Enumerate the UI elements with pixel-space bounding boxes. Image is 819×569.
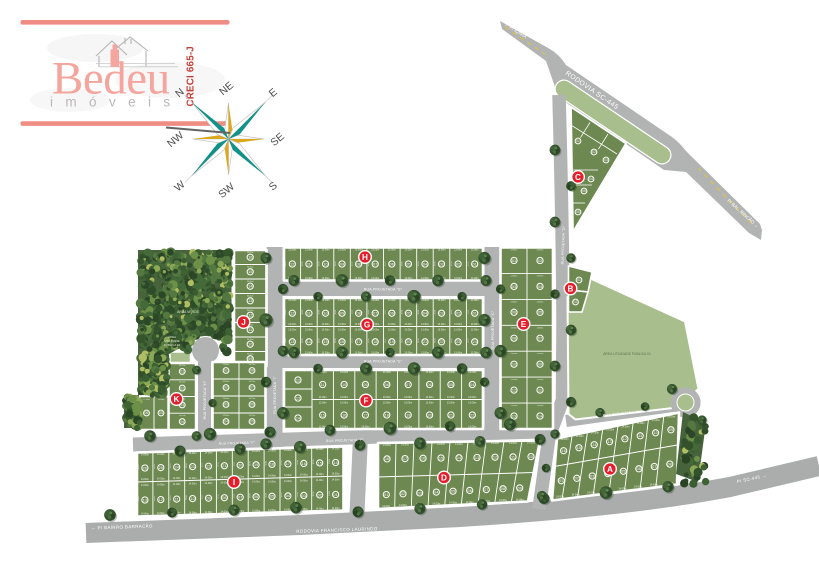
svg-text:14.75m: 14.75m	[249, 364, 256, 366]
svg-text:03: 03	[302, 494, 306, 498]
svg-text:05: 05	[270, 495, 274, 499]
svg-text:C: C	[575, 173, 581, 182]
svg-text:RUA PROJETADA "B": RUA PROJETADA "B"	[364, 287, 403, 291]
svg-text:05: 05	[451, 490, 455, 494]
svg-text:13.00m: 13.00m	[388, 299, 396, 302]
svg-text:13: 13	[290, 340, 294, 344]
svg-text:30.00: 30.00	[249, 493, 251, 498]
svg-text:13.00m: 13.00m	[322, 323, 330, 326]
svg-text:11: 11	[511, 455, 515, 459]
svg-text:30.00: 30.00	[418, 338, 420, 343]
svg-text:14.00m: 14.00m	[173, 477, 181, 480]
svg-text:13.00m: 13.00m	[421, 323, 429, 326]
svg-text:13.00m: 13.00m	[454, 351, 462, 354]
svg-text:23.80m: 23.80m	[537, 327, 544, 329]
svg-text:06: 06	[637, 467, 641, 471]
svg-text:13.00m: 13.00m	[438, 299, 446, 302]
svg-text:18: 18	[385, 457, 389, 461]
svg-text:04: 04	[470, 383, 474, 387]
svg-text:23.80m: 23.80m	[537, 405, 544, 407]
svg-text:14.00m: 14.00m	[399, 504, 407, 507]
svg-text:14.00m: 14.00m	[157, 453, 165, 456]
svg-text:13.00m: 13.00m	[421, 299, 429, 302]
svg-text:14.00m: 14.00m	[220, 510, 228, 513]
svg-text:RUA PROJETADA "C": RUA PROJETADA "C"	[491, 310, 495, 349]
svg-text:30.00: 30.00	[401, 310, 403, 315]
svg-text:13.00m: 13.00m	[355, 299, 363, 302]
svg-text:09: 09	[363, 383, 367, 387]
svg-text:13: 13	[475, 456, 479, 460]
svg-text:14.00m: 14.00m	[637, 422, 645, 425]
svg-text:30.00: 30.00	[451, 338, 453, 343]
svg-text:02: 02	[456, 312, 460, 316]
svg-text:04: 04	[180, 420, 184, 424]
svg-text:24.00m: 24.00m	[223, 415, 230, 417]
svg-text:13.00m: 13.00m	[340, 371, 348, 374]
svg-text:16: 16	[421, 457, 425, 461]
svg-text:03: 03	[439, 262, 443, 266]
svg-text:14.00m: 14.00m	[220, 451, 228, 454]
svg-text:01: 01	[473, 262, 477, 266]
svg-text:14.00m: 14.00m	[205, 476, 213, 479]
svg-text:14.75m: 14.75m	[249, 381, 256, 383]
svg-text:30.00: 30.00	[302, 262, 304, 267]
svg-text:11: 11	[538, 389, 542, 393]
svg-text:13.00m: 13.00m	[340, 396, 348, 399]
svg-text:24.00m: 24.00m	[223, 364, 230, 366]
svg-text:G: G	[364, 320, 370, 329]
svg-text:14.00m: 14.00m	[141, 478, 149, 481]
svg-text:13.00m: 13.00m	[355, 277, 363, 280]
svg-text:06: 06	[468, 489, 472, 493]
svg-text:08: 08	[356, 262, 360, 266]
svg-text:10: 10	[190, 497, 194, 501]
svg-text:13.00m: 13.00m	[383, 371, 391, 374]
svg-text:13.00m: 13.00m	[404, 277, 412, 280]
svg-text:04: 04	[286, 494, 290, 498]
svg-text:08: 08	[222, 496, 226, 500]
svg-text:17: 17	[286, 462, 290, 466]
svg-text:22: 22	[206, 465, 210, 469]
svg-text:14.00m: 14.00m	[432, 503, 440, 506]
svg-text:01: 01	[512, 259, 516, 263]
svg-text:01: 01	[180, 370, 184, 374]
svg-text:14.00m: 14.00m	[466, 501, 474, 504]
svg-text:07: 07	[484, 488, 488, 492]
svg-text:01: 01	[384, 493, 388, 497]
svg-text:09: 09	[340, 262, 344, 266]
svg-text:30.00: 30.00	[138, 497, 140, 502]
svg-text:13: 13	[607, 440, 611, 444]
svg-text:F: F	[363, 396, 368, 405]
svg-text:13.00m: 13.00m	[447, 402, 455, 405]
svg-text:14.75m: 14.75m	[249, 415, 256, 417]
svg-text:30.00: 30.00	[352, 338, 354, 343]
svg-text:30.00: 30.00	[249, 461, 251, 466]
svg-text:13.00m: 13.00m	[447, 396, 455, 399]
svg-text:07: 07	[538, 337, 542, 341]
svg-text:01: 01	[559, 479, 563, 483]
svg-text:23.80m: 23.80m	[537, 379, 544, 381]
svg-text:13.00m: 13.00m	[426, 402, 434, 405]
svg-text:04: 04	[423, 312, 427, 316]
svg-text:19: 19	[406, 413, 410, 417]
svg-text:ÁREA VERDE: ÁREA VERDE	[177, 310, 199, 314]
svg-text:01: 01	[577, 278, 581, 282]
svg-text:13.00m: 13.00m	[371, 277, 379, 280]
svg-text:PÚBLICA 02: PÚBLICA 02	[164, 343, 181, 347]
svg-text:15: 15	[323, 340, 327, 344]
svg-text:13.00m: 13.00m	[340, 402, 348, 405]
svg-text:17: 17	[356, 340, 360, 344]
svg-text:13.00m: 13.00m	[338, 329, 346, 332]
svg-text:13.00m: 13.00m	[468, 402, 476, 405]
svg-text:03: 03	[439, 312, 443, 316]
svg-text:06: 06	[427, 383, 431, 387]
svg-text:30.00: 30.00	[451, 310, 453, 315]
svg-text:21: 21	[222, 464, 226, 468]
svg-text:06: 06	[390, 312, 394, 316]
svg-text:30.00: 30.00	[297, 460, 299, 465]
svg-text:30.00: 30.00	[218, 462, 220, 467]
svg-text:03: 03	[224, 403, 228, 407]
svg-text:30.00: 30.00	[335, 338, 337, 343]
svg-text:13.00m: 13.00m	[471, 277, 479, 280]
svg-text:05: 05	[406, 312, 410, 316]
svg-text:13.00m: 13.00m	[454, 329, 462, 332]
svg-text:13.00m: 13.00m	[426, 425, 434, 428]
svg-text:13.00m: 13.00m	[404, 425, 412, 428]
svg-text:23.80m: 23.80m	[511, 275, 518, 277]
svg-text:24.00m: 24.00m	[179, 382, 186, 384]
svg-text:14.00m: 14.00m	[449, 502, 457, 505]
svg-text:14.00m: 14.00m	[499, 499, 507, 502]
svg-text:14.00m: 14.00m	[652, 419, 660, 422]
svg-text:14.00m: 14.00m	[316, 473, 324, 476]
svg-text:07: 07	[652, 465, 656, 469]
svg-text:13.00m: 13.00m	[371, 299, 379, 302]
svg-text:13.00m: 13.00m	[468, 371, 476, 374]
svg-text:14.00m: 14.00m	[437, 443, 445, 446]
svg-text:12: 12	[290, 262, 294, 266]
svg-text:02: 02	[538, 259, 542, 263]
svg-text:23.80m: 23.80m	[537, 250, 544, 252]
svg-text:14.00m: 14.00m	[189, 511, 197, 514]
svg-text:30.00: 30.00	[154, 464, 156, 469]
svg-text:02: 02	[180, 386, 184, 390]
svg-text:30.00: 30.00	[468, 262, 470, 267]
svg-text:16: 16	[340, 340, 344, 344]
svg-text:13.00m: 13.00m	[454, 323, 462, 326]
svg-text:10: 10	[323, 312, 327, 316]
svg-text:02: 02	[224, 386, 228, 390]
svg-text:14.00m: 14.00m	[316, 508, 324, 511]
svg-text:11: 11	[248, 328, 252, 332]
svg-text:08: 08	[250, 369, 254, 373]
svg-text:30.00m: 30.00m	[247, 353, 254, 355]
svg-text:05: 05	[621, 470, 625, 474]
svg-text:11: 11	[638, 434, 642, 438]
svg-text:13.00m: 13.00m	[371, 329, 379, 332]
svg-text:13.00m: 13.00m	[288, 329, 296, 332]
svg-text:13.00m: 13.00m	[288, 249, 296, 252]
svg-text:16: 16	[248, 256, 252, 260]
svg-text:13.00m: 13.00m	[361, 425, 369, 428]
svg-text:21: 21	[423, 340, 427, 344]
svg-text:02: 02	[574, 300, 578, 304]
svg-text:30.00: 30.00	[154, 496, 156, 501]
svg-text:05: 05	[406, 262, 410, 266]
svg-text:13.00m: 13.00m	[454, 249, 462, 252]
svg-text:12: 12	[623, 437, 627, 441]
svg-text:14.00m: 14.00m	[401, 444, 409, 447]
svg-text:30.00: 30.00	[318, 338, 320, 343]
svg-text:30.00: 30.00	[281, 461, 283, 466]
svg-text:06: 06	[145, 411, 149, 415]
svg-text:I: I	[233, 478, 235, 487]
svg-text:13.00m: 13.00m	[421, 351, 429, 354]
svg-text:E: E	[521, 320, 527, 329]
svg-text:30.00: 30.00	[385, 338, 387, 343]
svg-text:14.00m: 14.00m	[587, 492, 595, 495]
svg-text:30.00: 30.00	[302, 310, 304, 315]
svg-text:10: 10	[512, 363, 516, 367]
svg-text:30.00m: 30.00m	[247, 281, 254, 283]
svg-text:02: 02	[401, 492, 405, 496]
svg-text:13.00m: 13.00m	[305, 329, 313, 332]
svg-text:14.00m: 14.00m	[316, 479, 324, 482]
svg-text:30.00: 30.00	[138, 465, 140, 470]
svg-text:13.00m: 13.00m	[338, 249, 346, 252]
svg-text:23: 23	[190, 465, 194, 469]
svg-text:13.00m: 13.00m	[288, 299, 296, 302]
svg-text:13.00m: 13.00m	[288, 323, 296, 326]
svg-text:03: 03	[418, 491, 422, 495]
svg-text:02: 02	[456, 262, 460, 266]
svg-text:23.80m: 23.80m	[511, 301, 518, 303]
svg-text:30.00: 30.00	[265, 461, 267, 466]
svg-text:14.00m: 14.00m	[205, 482, 213, 485]
svg-text:14.00m: 14.00m	[591, 432, 599, 435]
svg-text:08: 08	[356, 312, 360, 316]
svg-text:13.00m: 13.00m	[471, 249, 479, 252]
svg-text:15: 15	[577, 446, 581, 450]
svg-text:14.00m: 14.00m	[173, 483, 181, 486]
svg-text:14.00m: 14.00m	[189, 483, 197, 486]
svg-text:13.00m: 13.00m	[438, 329, 446, 332]
svg-text:J: J	[241, 318, 246, 327]
svg-text:13.00m: 13.00m	[454, 277, 462, 280]
svg-text:13.00m: 13.00m	[305, 249, 313, 252]
svg-text:07: 07	[250, 386, 254, 390]
svg-text:03: 03	[512, 285, 516, 289]
svg-text:08: 08	[385, 383, 389, 387]
svg-text:13.00m: 13.00m	[404, 402, 412, 405]
svg-text:30.00: 30.00	[285, 310, 287, 315]
svg-text:23: 23	[456, 340, 460, 344]
svg-text:18: 18	[385, 413, 389, 417]
svg-text:14.00m: 14.00m	[560, 438, 568, 441]
svg-text:30.00: 30.00	[352, 310, 354, 315]
svg-text:05: 05	[538, 311, 542, 315]
svg-text:13.00m: 13.00m	[471, 329, 479, 332]
svg-text:20: 20	[427, 413, 431, 417]
svg-text:22: 22	[470, 413, 474, 417]
svg-text:11: 11	[175, 498, 179, 502]
svg-text:30.00: 30.00	[329, 491, 331, 496]
svg-text:23.80m: 23.80m	[511, 353, 518, 355]
svg-text:13: 13	[296, 396, 300, 400]
svg-text:14.00m: 14.00m	[455, 443, 463, 446]
svg-text:13.00m: 13.00m	[319, 396, 327, 399]
svg-text:14: 14	[248, 285, 252, 289]
svg-text:30.00: 30.00	[329, 459, 331, 464]
svg-text:24: 24	[175, 466, 179, 470]
svg-text:04: 04	[224, 420, 228, 424]
svg-text:14.00m: 14.00m	[383, 444, 391, 447]
svg-text:13: 13	[248, 299, 252, 303]
svg-text:13.00m: 13.00m	[404, 323, 412, 326]
svg-text:09: 09	[538, 363, 542, 367]
svg-text:13.00m: 13.00m	[322, 277, 330, 280]
svg-text:14.00m: 14.00m	[252, 509, 260, 512]
svg-text:13.00m: 13.00m	[388, 329, 396, 332]
svg-text:30.00: 30.00	[468, 338, 470, 343]
svg-text:14.00m: 14.00m	[650, 483, 658, 486]
svg-text:30.00: 30.00	[401, 338, 403, 343]
svg-text:23.80m: 23.80m	[511, 250, 518, 252]
svg-text:23.80m: 23.80m	[511, 379, 518, 381]
svg-text:14.00m: 14.00m	[332, 448, 340, 451]
svg-text:14.00m: 14.00m	[189, 452, 197, 455]
svg-text:30.00: 30.00	[434, 338, 436, 343]
svg-text:17.40m: 17.40m	[143, 399, 150, 401]
svg-text:13.00m: 13.00m	[305, 323, 313, 326]
svg-text:14.00m: 14.00m	[205, 451, 213, 454]
svg-text:14.00m: 14.00m	[252, 481, 260, 484]
svg-text:30.00: 30.00	[170, 464, 172, 469]
svg-text:16: 16	[561, 449, 565, 453]
svg-text:30.00: 30.00	[186, 463, 188, 468]
svg-text:14.00m: 14.00m	[576, 435, 584, 438]
svg-text:13.00m: 13.00m	[421, 249, 429, 252]
svg-text:13.00m: 13.00m	[471, 299, 479, 302]
svg-text:30.00: 30.00	[202, 495, 204, 500]
svg-text:05: 05	[449, 383, 453, 387]
svg-text:imóveis: imóveis	[50, 95, 183, 110]
svg-text:14.00m: 14.00m	[382, 505, 390, 508]
svg-text:26: 26	[143, 466, 147, 470]
svg-text:07: 07	[406, 383, 410, 387]
svg-text:13.00m: 13.00m	[340, 425, 348, 428]
svg-text:30.00: 30.00	[170, 496, 172, 501]
svg-text:15: 15	[321, 413, 325, 417]
svg-text:23.80m: 23.80m	[511, 327, 518, 329]
svg-text:03: 03	[590, 474, 594, 478]
svg-text:14.00m: 14.00m	[141, 484, 149, 487]
svg-text:14.00m: 14.00m	[618, 488, 626, 491]
svg-text:14.00m: 14.00m	[509, 442, 517, 445]
svg-text:30.00: 30.00	[468, 310, 470, 315]
svg-text:04: 04	[589, 177, 593, 181]
svg-text:14.00m: 14.00m	[157, 478, 165, 481]
svg-text:14: 14	[333, 461, 337, 465]
svg-text:24.00m: 24.00m	[223, 398, 230, 400]
svg-text:13.00m: 13.00m	[404, 249, 412, 252]
svg-text:03: 03	[604, 158, 608, 162]
svg-text:13.00m: 13.00m	[388, 323, 396, 326]
svg-text:10: 10	[248, 343, 252, 347]
svg-text:30.00m: 30.00m	[247, 266, 254, 268]
svg-text:30.00: 30.00	[352, 262, 354, 267]
svg-text:14.00m: 14.00m	[606, 428, 614, 431]
svg-text:30.00: 30.00	[335, 310, 337, 315]
svg-text:14.00m: 14.00m	[157, 512, 165, 515]
svg-text:23.80m: 23.80m	[537, 275, 544, 277]
svg-text:13.00m: 13.00m	[338, 299, 346, 302]
svg-text:13.00m: 13.00m	[305, 277, 313, 280]
svg-text:30.00: 30.00	[318, 262, 320, 267]
svg-text:15: 15	[318, 461, 322, 465]
svg-text:08: 08	[501, 487, 505, 491]
svg-text:30.00: 30.00	[281, 493, 283, 498]
svg-text:30.00: 30.00	[451, 262, 453, 267]
svg-text:13.00m: 13.00m	[371, 249, 379, 252]
svg-text:30.00: 30.00	[335, 262, 337, 267]
svg-text:14.00m: 14.00m	[284, 449, 292, 452]
svg-text:14.00m: 14.00m	[268, 475, 276, 478]
svg-text:13.00m: 13.00m	[371, 351, 379, 354]
svg-text:30.00: 30.00	[202, 463, 204, 468]
svg-text:16: 16	[302, 462, 306, 466]
svg-text:13.00m: 13.00m	[355, 329, 363, 332]
svg-text:13.00m: 13.00m	[471, 351, 479, 354]
svg-text:30.00: 30.00	[234, 494, 236, 499]
svg-text:08: 08	[668, 463, 672, 467]
svg-text:23.80m: 23.80m	[511, 405, 518, 407]
svg-text:13.00m: 13.00m	[447, 371, 455, 374]
svg-text:07: 07	[373, 262, 377, 266]
svg-text:14.00m: 14.00m	[516, 498, 524, 501]
svg-text:13.00m: 13.00m	[421, 329, 429, 332]
svg-text:04: 04	[434, 491, 438, 495]
svg-text:12: 12	[296, 378, 300, 382]
svg-text:13.00m: 13.00m	[388, 249, 396, 252]
svg-text:14: 14	[307, 340, 311, 344]
svg-text:11: 11	[307, 262, 311, 266]
svg-text:13.00m: 13.00m	[426, 371, 434, 374]
svg-text:09: 09	[669, 428, 673, 432]
svg-text:06: 06	[250, 403, 254, 407]
svg-text:13.00m: 13.00m	[404, 329, 412, 332]
svg-text:07: 07	[373, 312, 377, 316]
svg-text:25: 25	[159, 466, 163, 470]
svg-text:14: 14	[538, 414, 542, 418]
svg-text:14.00m: 14.00m	[332, 473, 340, 476]
svg-text:08: 08	[512, 337, 516, 341]
svg-text:30.00: 30.00	[385, 262, 387, 267]
svg-text:13.00m: 13.00m	[404, 396, 412, 399]
svg-text:30.00: 30.00	[385, 310, 387, 315]
svg-text:18: 18	[270, 463, 274, 467]
svg-text:30.00: 30.00	[318, 310, 320, 315]
svg-text:13.00m: 13.00m	[322, 329, 330, 332]
svg-text:30.00: 30.00	[418, 310, 420, 315]
svg-text:13.00m: 13.00m	[468, 425, 476, 428]
svg-text:14.00m: 14.00m	[189, 477, 197, 480]
svg-text:30.00: 30.00	[434, 262, 436, 267]
svg-text:14.00m: 14.00m	[556, 496, 564, 499]
